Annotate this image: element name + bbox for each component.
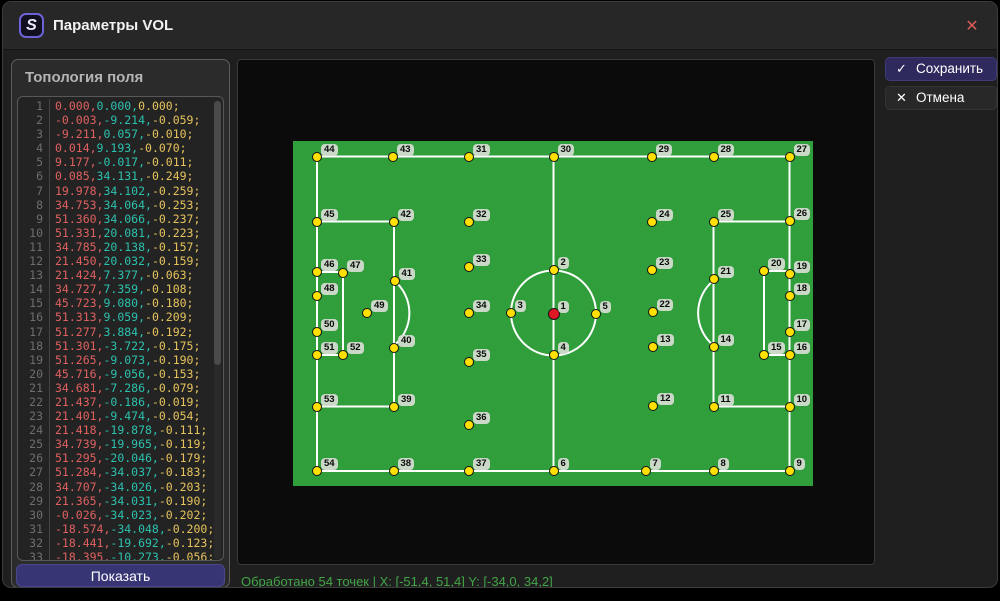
check-icon: ✓	[896, 61, 916, 77]
field-point-dot	[506, 308, 516, 318]
point-label: 29	[656, 144, 673, 156]
line-number: 14	[18, 282, 50, 296]
line-number: 33	[18, 550, 50, 561]
editor-line: 2-0.003,-9.214,-0.059;	[18, 113, 223, 127]
point-label: 36	[473, 412, 490, 424]
x-icon: ✕	[896, 90, 916, 106]
line-number: 8	[18, 198, 50, 212]
point-label: 18	[794, 283, 811, 295]
editor-line: 1851.301,-3.722,-0.175;	[18, 339, 223, 353]
point-label: 12	[657, 393, 674, 405]
close-icon[interactable]: ✕	[961, 16, 983, 38]
coords-editor[interactable]: 10.000,0.000,0.000;2-0.003,-9.214,-0.059…	[17, 96, 224, 561]
point-label: 54	[321, 458, 338, 470]
point-label: 46	[321, 259, 338, 271]
save-label: Сохранить	[916, 61, 983, 76]
field-point-dot	[549, 152, 559, 162]
point-label: 15	[768, 342, 785, 354]
line-number: 7	[18, 184, 50, 198]
point-label: 49	[371, 300, 388, 312]
status-text: Обработано 54 точек | X: [-51,4, 51,4] Y…	[241, 574, 553, 588]
show-button[interactable]: Показать	[16, 564, 225, 587]
point-label: 34	[473, 300, 490, 312]
point-label: 31	[473, 144, 490, 156]
field-preview-panel: 1234567891011121314151617181920212223242…	[237, 59, 875, 565]
line-number: 1	[18, 99, 50, 113]
field-point-dot	[709, 152, 719, 162]
point-label: 42	[398, 209, 415, 221]
editor-line: 33-18.395,-10.273,-0.056;	[18, 550, 223, 561]
editor-line: 2321.401,-9.474,-0.054;	[18, 409, 223, 423]
editor-line: 3-9.211,0.057,-0.010;	[18, 127, 223, 141]
editor-line: 40.014,9.193,-0.070;	[18, 141, 223, 155]
point-label: 35	[473, 349, 490, 361]
point-label: 13	[657, 334, 674, 346]
line-number: 23	[18, 409, 50, 423]
editor-line: 1951.265,-9.073,-0.190;	[18, 353, 223, 367]
line-number: 5	[18, 155, 50, 169]
point-label: 27	[794, 144, 811, 156]
editor-line: 2221.437,-0.186,-0.019;	[18, 395, 223, 409]
app-window: S Параметры VOL ✕ Топология поля 10.000,…	[2, 1, 998, 588]
line-number: 25	[18, 437, 50, 451]
field-point-dot	[641, 466, 651, 476]
point-label: 24	[656, 209, 673, 221]
point-label: 50	[321, 319, 338, 331]
editor-line: 10.000,0.000,0.000;	[18, 99, 223, 113]
point-label: 17	[794, 319, 811, 331]
line-number: 9	[18, 212, 50, 226]
field-point-dot	[390, 276, 400, 286]
field-point-dot	[785, 402, 795, 412]
point-label: 16	[794, 342, 811, 354]
titlebar: S Параметры VOL ✕	[3, 2, 997, 50]
editor-line: 32-18.441,-19.692,-0.123;	[18, 536, 223, 550]
line-number: 20	[18, 367, 50, 381]
point-label: 1	[558, 301, 569, 313]
line-number: 26	[18, 451, 50, 465]
line-number: 30	[18, 508, 50, 522]
editor-lines: 10.000,0.000,0.000;2-0.003,-9.214,-0.059…	[18, 99, 223, 561]
point-label: 48	[321, 283, 338, 295]
point-label: 25	[718, 209, 735, 221]
editor-line: 719.978,34.102,-0.259;	[18, 184, 223, 198]
editor-line: 1651.313,9.059,-0.209;	[18, 310, 223, 324]
point-label: 11	[718, 394, 734, 406]
line-number: 13	[18, 268, 50, 282]
point-label: 47	[347, 260, 364, 272]
field-point-dot	[709, 274, 719, 284]
editor-line: 30-0.026,-34.023,-0.202;	[18, 508, 223, 522]
line-number: 11	[18, 240, 50, 254]
field-point-dot	[709, 342, 719, 352]
point-label: 9	[794, 458, 805, 470]
editor-line: 1434.727,7.359,-0.108;	[18, 282, 223, 296]
line-number: 16	[18, 310, 50, 324]
field-point-dot	[549, 350, 559, 360]
field-point-dot	[785, 350, 795, 360]
point-label: 53	[321, 394, 338, 406]
editor-line: 1751.277,3.884,-0.192;	[18, 325, 223, 339]
line-number: 21	[18, 381, 50, 395]
editor-scrollbar[interactable]	[214, 100, 221, 559]
line-number: 2	[18, 113, 50, 127]
point-label: 14	[718, 334, 735, 346]
field-point-dot	[389, 217, 399, 227]
field-point-dot	[549, 265, 559, 275]
point-label: 21	[718, 266, 735, 278]
point-label: 30	[558, 144, 575, 156]
save-button[interactable]: ✓Сохранить	[885, 57, 997, 81]
editor-line: 59.177,-0.017,-0.011;	[18, 155, 223, 169]
field-point-dot	[709, 217, 719, 227]
field-point-dot	[389, 466, 399, 476]
editor-line: 2921.365,-34.031,-0.190;	[18, 494, 223, 508]
point-label: 8	[718, 458, 729, 470]
point-label: 5	[600, 301, 611, 313]
point-label: 20	[768, 258, 785, 270]
line-number: 27	[18, 465, 50, 479]
point-label: 4	[558, 342, 569, 354]
field-point-dot	[647, 152, 657, 162]
field-point-dot	[709, 466, 719, 476]
window-title: Параметры VOL	[53, 17, 173, 34]
point-label: 19	[794, 261, 811, 273]
point-label: 2	[558, 257, 569, 269]
line-number: 4	[18, 141, 50, 155]
line-number: 29	[18, 494, 50, 508]
point-label: 33	[473, 254, 490, 266]
field-point-dot	[785, 291, 795, 301]
editor-line: 2421.418,-19.878,-0.111;	[18, 423, 223, 437]
point-label: 38	[398, 458, 415, 470]
line-number: 31	[18, 522, 50, 536]
editor-line: 60.085,34.131,-0.249;	[18, 169, 223, 183]
line-number: 15	[18, 296, 50, 310]
field-point-dot	[785, 152, 795, 162]
field-point-dot	[785, 466, 795, 476]
line-number: 10	[18, 226, 50, 240]
field-point-dot	[549, 466, 559, 476]
editor-line: 1134.785,20.138,-0.157;	[18, 240, 223, 254]
line-number: 18	[18, 339, 50, 353]
field-point-dot	[709, 402, 719, 412]
line-number: 6	[18, 169, 50, 183]
line-number: 22	[18, 395, 50, 409]
line-number: 28	[18, 480, 50, 494]
line-number: 3	[18, 127, 50, 141]
point-label: 10	[794, 394, 811, 406]
editor-line: 1221.450,20.032,-0.159;	[18, 254, 223, 268]
editor-line: 2651.295,-20.046,-0.179;	[18, 451, 223, 465]
line-number: 32	[18, 536, 50, 550]
panel-title: Топология поля	[12, 60, 229, 96]
field-point-dot	[785, 216, 795, 226]
point-label: 32	[473, 209, 490, 221]
point-label: 28	[718, 144, 735, 156]
point-label: 37	[473, 458, 490, 470]
editor-line: 1051.331,20.081,-0.223;	[18, 226, 223, 240]
point-label: 26	[794, 208, 811, 220]
point-label: 41	[399, 268, 416, 280]
editor-line: 834.753,34.064,-0.253;	[18, 198, 223, 212]
field-point-dot	[591, 309, 601, 319]
point-label: 45	[321, 209, 338, 221]
editor-line: 2751.284,-34.037,-0.183;	[18, 465, 223, 479]
editor-line: 31-18.574,-34.048,-0.200;	[18, 522, 223, 536]
editor-line: 2834.707,-34.026,-0.203;	[18, 480, 223, 494]
field-point-dot	[785, 327, 795, 337]
editor-line: 2134.681,-7.286,-0.079;	[18, 381, 223, 395]
scrollbar-thumb[interactable]	[214, 101, 221, 365]
editor-line: 1321.424,7.377,-0.063;	[18, 268, 223, 282]
line-number: 19	[18, 353, 50, 367]
point-label: 3	[515, 300, 526, 312]
editor-line: 2534.739,-19.965,-0.119;	[18, 437, 223, 451]
soccer-field: 1234567891011121314151617181920212223242…	[293, 141, 813, 486]
point-label: 43	[397, 144, 414, 156]
cancel-button[interactable]: ✕Отмена	[885, 86, 997, 110]
point-label: 40	[398, 335, 415, 347]
point-label: 6	[558, 458, 569, 470]
point-label: 22	[657, 299, 674, 311]
point-label: 44	[321, 144, 338, 156]
editor-line: 1545.723,9.080,-0.180;	[18, 296, 223, 310]
cancel-label: Отмена	[916, 90, 964, 105]
line-number: 12	[18, 254, 50, 268]
topology-panel: Топология поля 10.000,0.000,0.000;2-0.00…	[11, 59, 230, 588]
app-logo-icon: S	[19, 13, 44, 38]
line-number: 24	[18, 423, 50, 437]
point-label: 51	[321, 342, 338, 354]
point-label: 39	[398, 394, 415, 406]
editor-line: 2045.716,-9.056,-0.153;	[18, 367, 223, 381]
field-point-dot	[648, 307, 658, 317]
line-number: 17	[18, 325, 50, 339]
field-point-dot	[785, 269, 795, 279]
point-label: 7	[650, 458, 661, 470]
point-label: 52	[347, 342, 364, 354]
point-label: 23	[656, 257, 673, 269]
editor-line: 951.360,34.066,-0.237;	[18, 212, 223, 226]
